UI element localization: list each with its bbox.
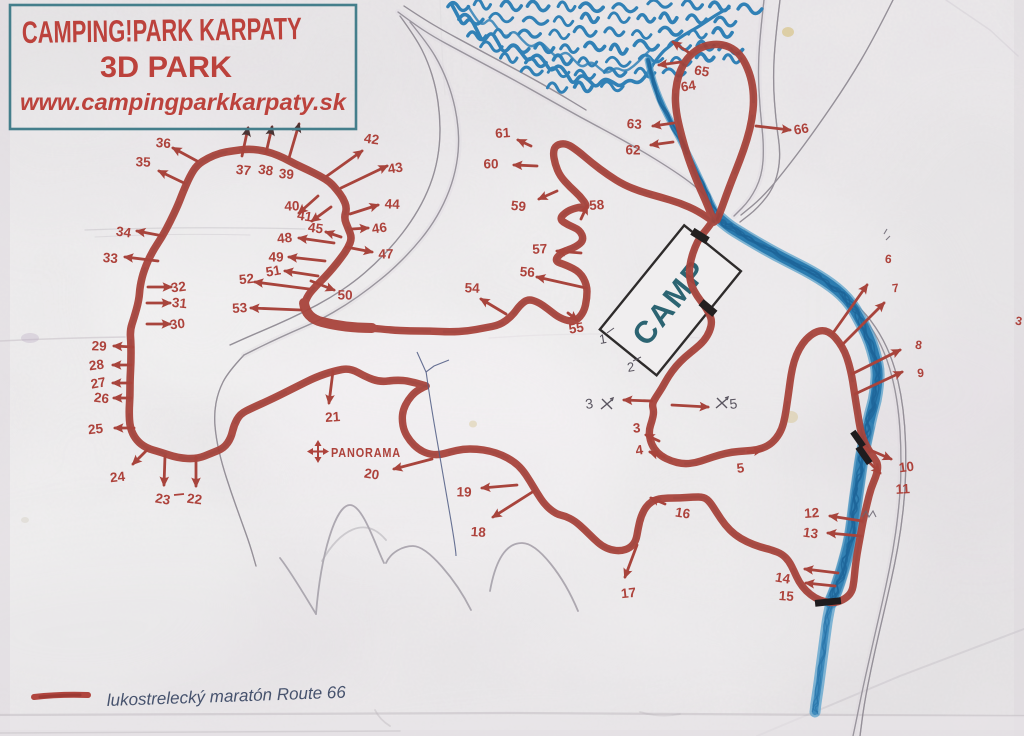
- svg-text:45: 45: [307, 220, 324, 237]
- svg-text:60: 60: [483, 157, 498, 172]
- svg-text:10: 10: [898, 459, 915, 476]
- svg-text:66: 66: [793, 120, 811, 137]
- svg-text:11: 11: [895, 481, 911, 497]
- svg-text:24: 24: [109, 469, 126, 486]
- svg-text:18: 18: [470, 524, 487, 540]
- svg-text:50: 50: [337, 287, 352, 302]
- svg-text:63: 63: [626, 116, 643, 132]
- svg-text:37: 37: [235, 162, 252, 178]
- svg-text:15: 15: [778, 588, 795, 604]
- svg-text:62: 62: [625, 143, 640, 158]
- svg-text:23: 23: [154, 490, 172, 507]
- svg-text:64: 64: [680, 77, 698, 94]
- svg-text:59: 59: [510, 198, 527, 214]
- svg-text:CAMPING!PARK KARPATY: CAMPING!PARK KARPATY: [22, 11, 303, 50]
- svg-text:65: 65: [693, 62, 711, 79]
- svg-text:12: 12: [804, 505, 820, 521]
- svg-text:PANORAMA: PANORAMA: [331, 445, 401, 460]
- svg-text:38: 38: [257, 161, 275, 178]
- svg-text:51: 51: [265, 262, 283, 279]
- svg-text:www.campingparkkarpaty.sk: www.campingparkkarpaty.sk: [20, 89, 347, 115]
- svg-text:56: 56: [519, 264, 536, 280]
- svg-text:35: 35: [135, 154, 151, 170]
- svg-text:42: 42: [363, 131, 380, 148]
- svg-text:43: 43: [387, 159, 405, 176]
- svg-text:47: 47: [378, 246, 393, 261]
- svg-text:61: 61: [495, 125, 512, 141]
- svg-text:39: 39: [278, 166, 294, 182]
- svg-text:20: 20: [363, 465, 380, 482]
- svg-text:14: 14: [774, 569, 792, 586]
- svg-text:16: 16: [674, 504, 692, 521]
- svg-text:3D PARK: 3D PARK: [100, 51, 232, 84]
- svg-text:34: 34: [115, 224, 132, 241]
- svg-text:29: 29: [91, 338, 107, 354]
- svg-text:26: 26: [93, 390, 110, 407]
- svg-text:46: 46: [371, 220, 388, 237]
- svg-text:30: 30: [169, 316, 186, 333]
- svg-text:22: 22: [186, 491, 203, 508]
- svg-text:19: 19: [456, 484, 471, 499]
- svg-text:52: 52: [238, 271, 255, 287]
- svg-text:13: 13: [802, 525, 819, 542]
- svg-text:53: 53: [232, 300, 249, 316]
- svg-text:55: 55: [568, 319, 586, 336]
- svg-text:48: 48: [276, 230, 293, 246]
- svg-text:33: 33: [102, 250, 119, 266]
- svg-text:21: 21: [325, 409, 342, 425]
- svg-text:44: 44: [384, 196, 400, 212]
- svg-text:54: 54: [464, 280, 480, 296]
- svg-text:31: 31: [171, 295, 188, 312]
- svg-text:28: 28: [88, 357, 105, 374]
- svg-text:58: 58: [589, 197, 606, 213]
- svg-text:57: 57: [532, 241, 548, 257]
- svg-text:17: 17: [620, 585, 637, 601]
- svg-text:32: 32: [170, 279, 187, 296]
- svg-text:36: 36: [155, 135, 172, 151]
- svg-text:25: 25: [87, 421, 104, 438]
